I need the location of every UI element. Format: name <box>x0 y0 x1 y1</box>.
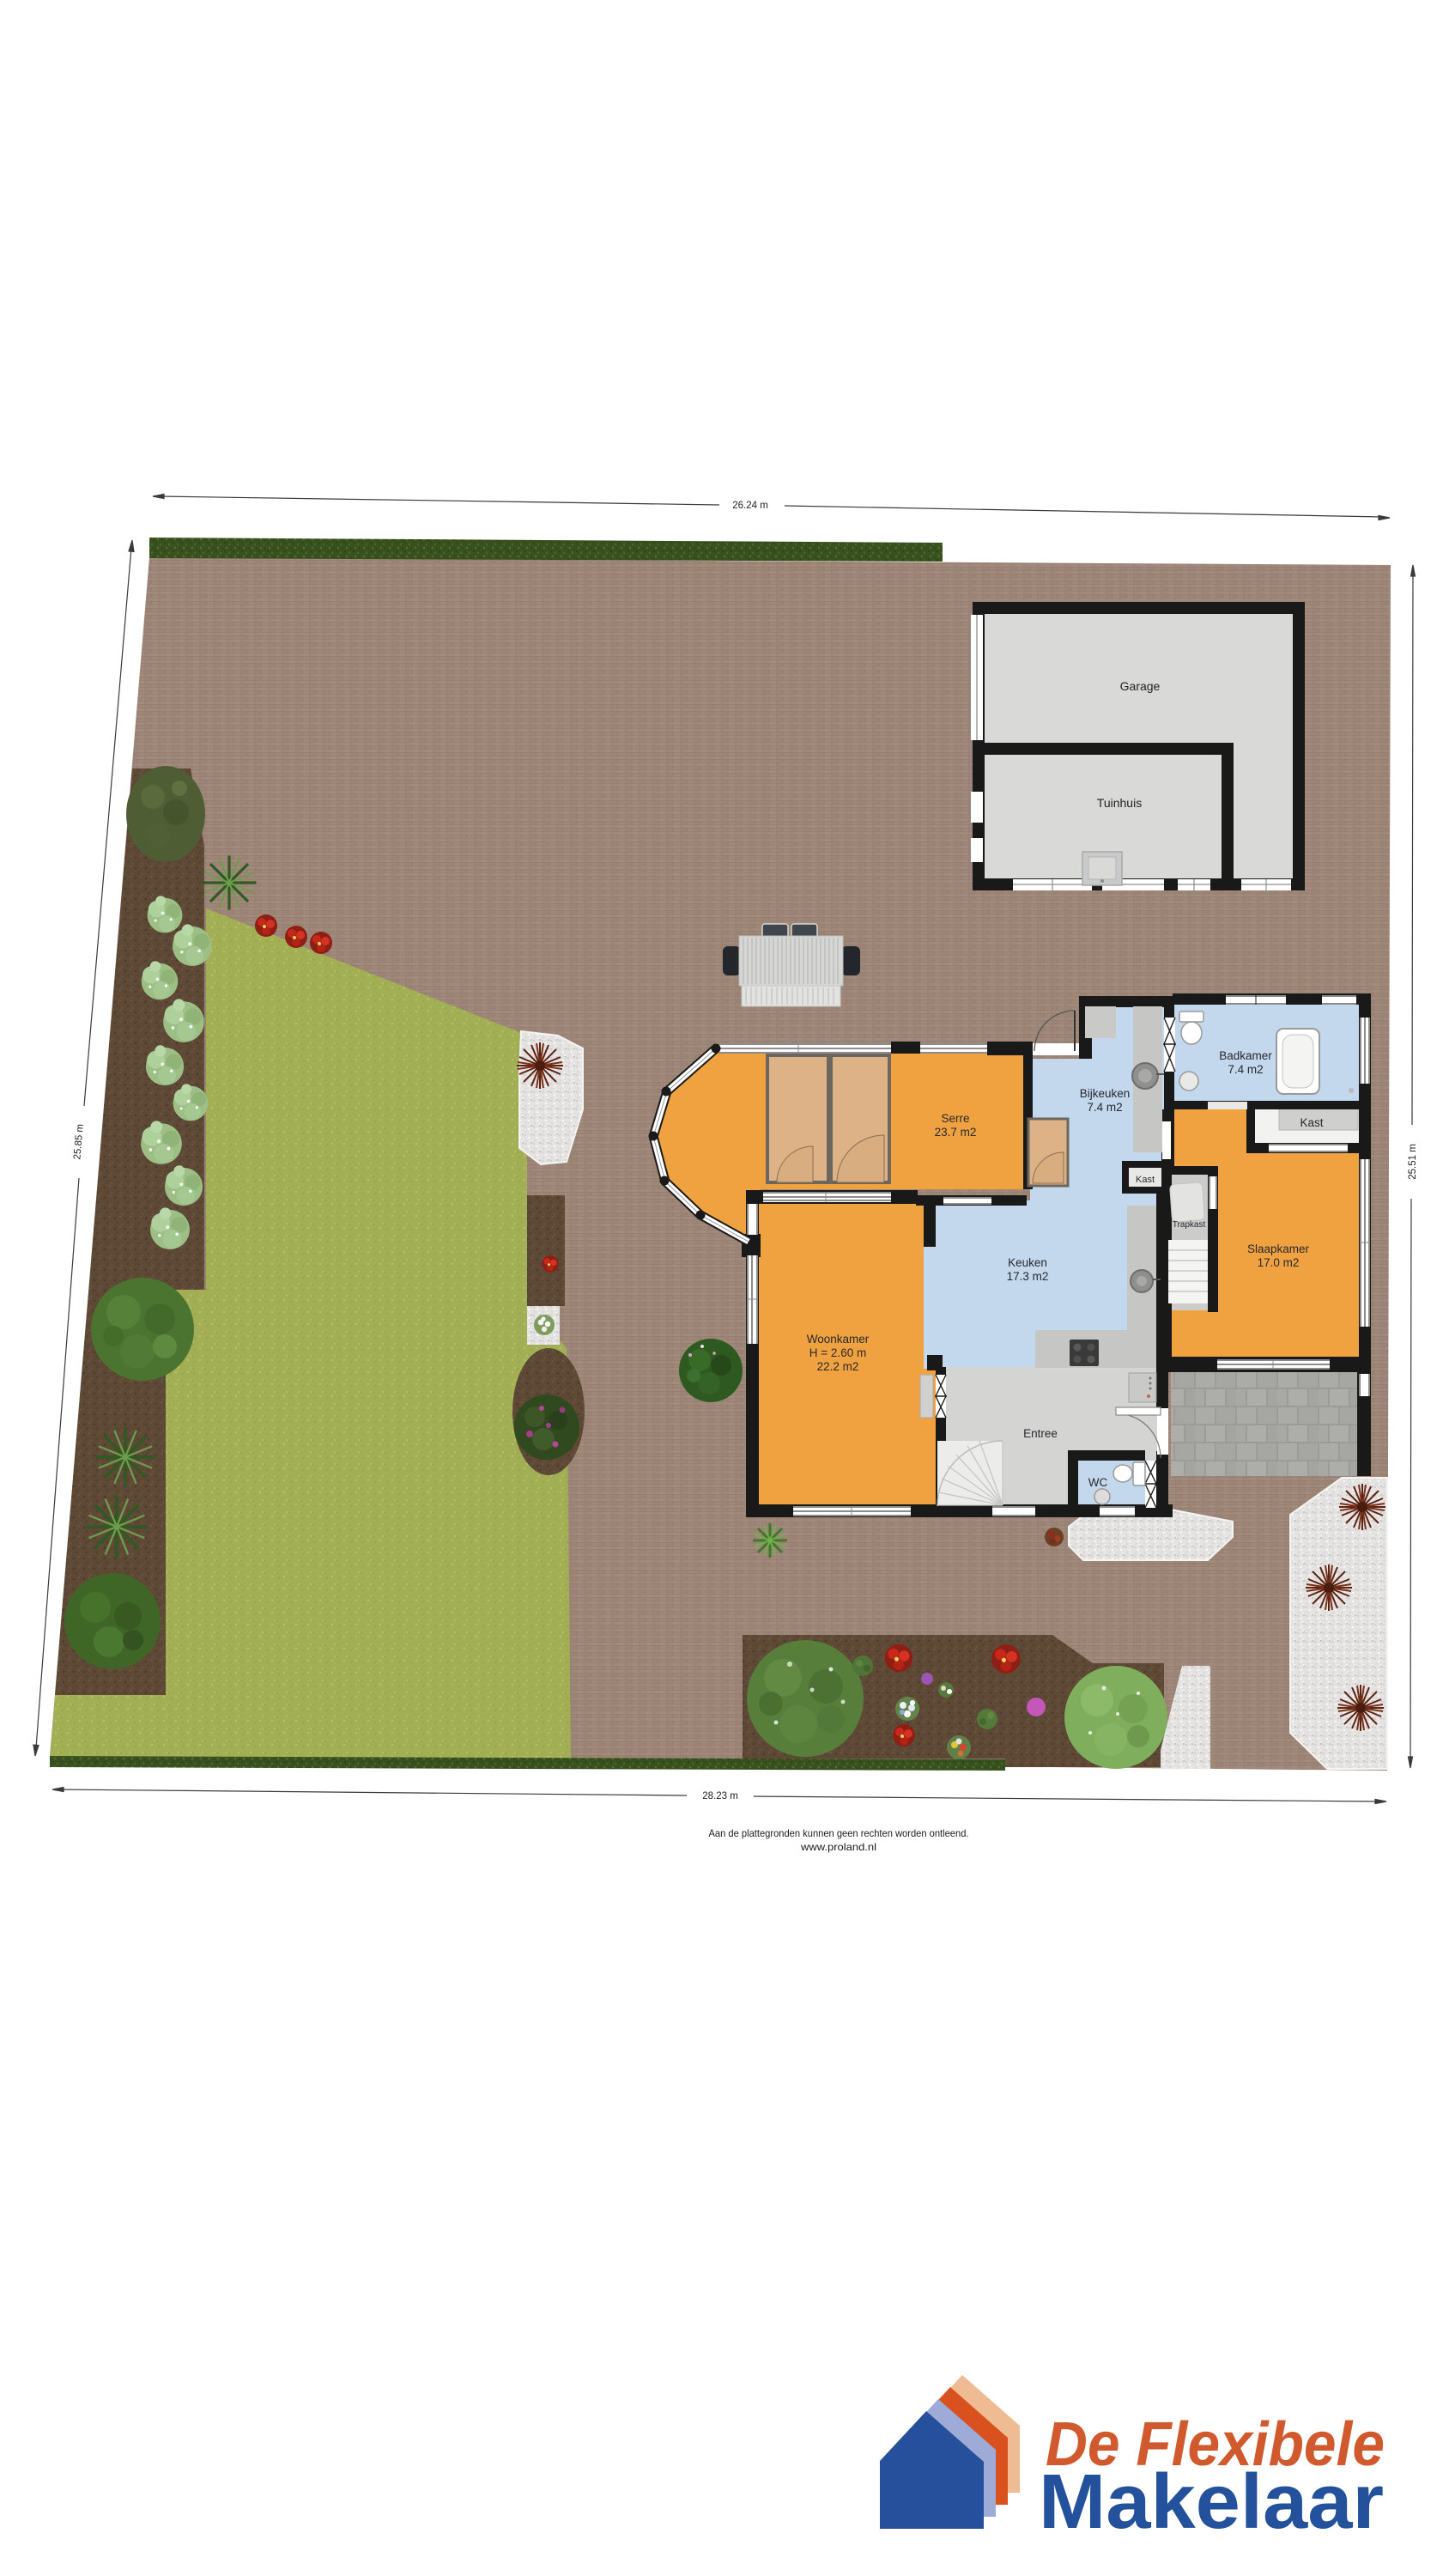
svg-text:17.0 m2: 17.0 m2 <box>1258 1256 1300 1269</box>
svg-text:H = 2.60 m: H = 2.60 m <box>809 1346 866 1359</box>
svg-text:Makelaar: Makelaar <box>1039 2459 1384 2545</box>
svg-text:Garage: Garage <box>1120 679 1161 693</box>
svg-text:7.4 m2: 7.4 m2 <box>1087 1101 1122 1114</box>
svg-text:28.23 m: 28.23 m <box>702 1791 738 1801</box>
svg-text:25.51 m: 25.51 m <box>1408 1144 1418 1180</box>
svg-text:Tuinhuis: Tuinhuis <box>1097 796 1142 810</box>
svg-text:26.24 m: 26.24 m <box>732 501 768 511</box>
svg-text:Kast: Kast <box>1300 1116 1323 1129</box>
svg-text:WC: WC <box>1088 1476 1108 1489</box>
svg-text:Slaapkamer: Slaapkamer <box>1247 1242 1310 1255</box>
svg-text:Bijkeuken: Bijkeuken <box>1080 1087 1131 1100</box>
svg-text:Keuken: Keuken <box>1008 1256 1047 1269</box>
svg-text:Trapkast: Trapkast <box>1173 1220 1206 1230</box>
svg-text:Woonkamer: Woonkamer <box>807 1333 870 1346</box>
svg-text:Aan de plattegronden kunnen ge: Aan de plattegronden kunnen geen rechten… <box>709 1827 969 1839</box>
svg-text:23.7 m2: 23.7 m2 <box>935 1126 977 1139</box>
svg-text:7.4 m2: 7.4 m2 <box>1228 1063 1263 1076</box>
svg-text:Kast: Kast <box>1136 1175 1155 1185</box>
svg-text:17.3 m2: 17.3 m2 <box>1007 1270 1049 1283</box>
svg-text:Badkamer: Badkamer <box>1219 1049 1272 1062</box>
svg-text:22.2 m2: 22.2 m2 <box>817 1360 859 1373</box>
svg-text:Serre: Serre <box>941 1112 969 1125</box>
svg-text:www.proland.nl: www.proland.nl <box>800 1841 876 1853</box>
svg-text:Entree: Entree <box>1023 1427 1058 1440</box>
